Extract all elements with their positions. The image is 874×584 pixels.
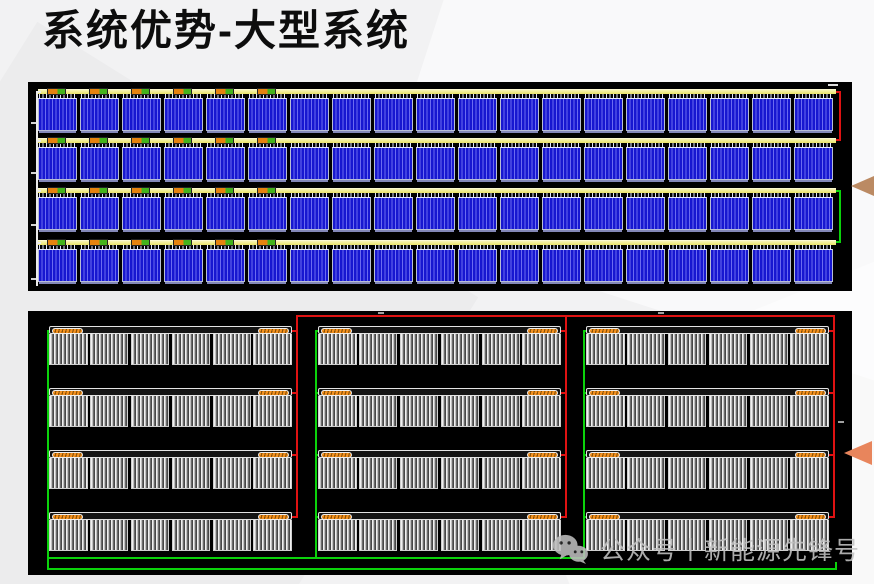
battery-rack-unit: [416, 138, 455, 184]
rack-id-label: [132, 89, 149, 94]
battery-rack-unit: [206, 188, 245, 234]
base-strip: [627, 180, 664, 182]
battery-modules: [80, 197, 119, 230]
base-strip: [753, 282, 790, 284]
rack-row: [28, 89, 852, 135]
base-strip: [207, 131, 244, 133]
base-strip: [123, 180, 160, 182]
battery-modules: [80, 249, 119, 282]
base-strip: [375, 180, 412, 182]
coil-icon: [527, 514, 558, 520]
rack-segment: [750, 334, 789, 365]
base-strip: [753, 180, 790, 182]
rack-top-rail: [586, 512, 829, 520]
rack-segment: [172, 334, 211, 365]
rack-id-label: [90, 240, 107, 245]
base-strip: [39, 282, 76, 284]
rack-segment: [482, 520, 521, 551]
base-strip: [375, 131, 412, 133]
battery-modules: [248, 147, 287, 180]
coil-icon: [589, 514, 620, 520]
battery-rack-unit: [38, 188, 77, 234]
base-strip: [291, 282, 328, 284]
rack-top-rail: [49, 450, 292, 458]
battery-modules: [374, 147, 413, 180]
rack-segment: [668, 458, 707, 489]
base-strip: [585, 131, 622, 133]
rack-top-rail: [318, 388, 561, 396]
battery-rack-unit: [584, 188, 623, 234]
base-strip: [669, 230, 706, 232]
rack-id-label: [132, 138, 149, 143]
base-strip: [123, 230, 160, 232]
rack-body: [318, 396, 561, 427]
coil-icon: [795, 390, 826, 396]
base-strip: [123, 131, 160, 133]
battery-modules: [710, 147, 749, 180]
battery-rack-unit: [500, 89, 539, 135]
rack-body: [318, 520, 561, 551]
rack-segment: [586, 458, 625, 489]
base-strip: [81, 230, 118, 232]
battery-rack-unit: [248, 188, 287, 234]
battery-modules: [584, 197, 623, 230]
rack-segment: [213, 520, 252, 551]
base-strip: [543, 230, 580, 232]
battery-modules: [416, 197, 455, 230]
battery-modules: [248, 98, 287, 131]
container-rack: [318, 326, 561, 366]
battery-rack-unit: [584, 138, 623, 184]
battery-modules: [164, 147, 203, 180]
base-strip: [459, 180, 496, 182]
rack-segment: [318, 396, 357, 427]
rack-segment: [49, 396, 88, 427]
battery-modules: [668, 98, 707, 131]
rack-id-label: [258, 89, 275, 94]
container-rack: [49, 450, 292, 490]
base-strip: [501, 230, 538, 232]
base-strip: [375, 230, 412, 232]
bus-tick: [31, 278, 36, 280]
base-strip: [207, 230, 244, 232]
battery-modules: [458, 147, 497, 180]
rack-segment: [213, 396, 252, 427]
battery-rack-unit: [290, 240, 329, 286]
battery-modules: [374, 249, 413, 282]
battery-rack-unit: [542, 138, 581, 184]
battery-rack-unit: [374, 188, 413, 234]
base-strip: [249, 230, 286, 232]
base-strip: [81, 180, 118, 182]
container-rack: [49, 512, 292, 552]
base-strip: [543, 180, 580, 182]
battery-rack-unit: [458, 240, 497, 286]
coil-icon: [527, 328, 558, 334]
battery-rack-unit: [290, 188, 329, 234]
base-strip: [81, 131, 118, 133]
base-strip: [123, 282, 160, 284]
base-strip: [543, 282, 580, 284]
battery-modules: [248, 249, 287, 282]
battery-rack-unit: [500, 188, 539, 234]
battery-modules: [164, 249, 203, 282]
battery-modules: [500, 249, 539, 282]
coil-icon: [321, 390, 352, 396]
battery-modules: [122, 197, 161, 230]
rack-segment: [253, 334, 292, 365]
coil-icon: [795, 514, 826, 520]
battery-modules: [752, 147, 791, 180]
coil-icon: [589, 452, 620, 458]
rack-row: [28, 138, 852, 184]
battery-rack-unit: [164, 138, 203, 184]
coil-icon: [52, 328, 83, 334]
rack-segment: [318, 520, 357, 551]
base-strip: [417, 230, 454, 232]
base-strip: [333, 131, 370, 133]
rack-body: [586, 334, 829, 365]
battery-rack-unit: [248, 138, 287, 184]
wechat-icon: [552, 533, 590, 565]
rack-segment: [131, 334, 170, 365]
rack-segment: [318, 458, 357, 489]
rack-id-label: [216, 240, 233, 245]
rack-top-rail: [318, 326, 561, 334]
base-strip: [795, 131, 832, 133]
watermark-text: 公众号丨新能源先锋号: [600, 531, 860, 567]
battery-modules: [626, 147, 665, 180]
battery-rack-unit: [794, 240, 833, 286]
battery-modules: [332, 197, 371, 230]
base-strip: [39, 230, 76, 232]
battery-rack-unit: [38, 138, 77, 184]
rack-segment: [522, 334, 561, 365]
base-strip: [249, 282, 286, 284]
rack-segment: [790, 458, 829, 489]
rack-body: [49, 520, 292, 551]
rack-segment: [627, 396, 666, 427]
base-strip: [711, 131, 748, 133]
rack-id-label: [216, 188, 233, 193]
battery-rack-unit: [710, 89, 749, 135]
battery-modules: [290, 197, 329, 230]
base-strip: [249, 131, 286, 133]
container-rack: [586, 388, 829, 428]
battery-modules: [668, 147, 707, 180]
battery-modules: [458, 197, 497, 230]
battery-rack-unit: [374, 240, 413, 286]
container-rack: [318, 388, 561, 428]
base-strip: [39, 180, 76, 182]
battery-rack-unit: [206, 240, 245, 286]
battery-rack-unit: [584, 240, 623, 286]
container-rack: [49, 326, 292, 366]
container-rack: [318, 450, 561, 490]
coil-icon: [795, 452, 826, 458]
base-strip: [753, 131, 790, 133]
battery-rack-unit: [668, 188, 707, 234]
rack-segment: [172, 396, 211, 427]
rack-id-label: [48, 188, 65, 193]
base-strip: [333, 230, 370, 232]
battery-rack-unit: [38, 89, 77, 135]
coil-icon: [795, 328, 826, 334]
battery-rack-unit: [122, 138, 161, 184]
base-strip: [585, 282, 622, 284]
battery-modules: [500, 147, 539, 180]
rack-id-label: [132, 188, 149, 193]
rack-body: [586, 396, 829, 427]
battery-modules: [416, 98, 455, 131]
rack-segment: [172, 458, 211, 489]
rack-segment: [318, 334, 357, 365]
base-strip: [249, 180, 286, 182]
battery-modules: [710, 249, 749, 282]
rack-segment: [90, 334, 129, 365]
base-strip: [711, 282, 748, 284]
coil-icon: [258, 328, 289, 334]
coil-icon: [321, 452, 352, 458]
battery-modules: [38, 249, 77, 282]
battery-modules: [248, 197, 287, 230]
coil-icon: [52, 452, 83, 458]
battery-modules: [584, 147, 623, 180]
rack-id-label: [258, 240, 275, 245]
base-strip: [501, 282, 538, 284]
base-strip: [333, 180, 370, 182]
battery-modules: [542, 249, 581, 282]
rack-body: [318, 334, 561, 365]
battery-rack-unit: [710, 188, 749, 234]
battery-modules: [458, 98, 497, 131]
base-strip: [543, 131, 580, 133]
base-strip: [459, 230, 496, 232]
base-strip: [459, 131, 496, 133]
bus-tick: [31, 172, 36, 174]
battery-rack-unit: [164, 89, 203, 135]
base-strip: [711, 230, 748, 232]
rack-id-label: [132, 240, 149, 245]
rack-segment: [359, 334, 398, 365]
slide: 系统优势-大型系统 公众号丨新能源先锋号: [0, 0, 874, 584]
base-strip: [459, 282, 496, 284]
rack-top-rail: [586, 450, 829, 458]
battery-modules: [794, 197, 833, 230]
battery-modules: [206, 98, 245, 131]
battery-modules: [542, 197, 581, 230]
base-strip: [81, 282, 118, 284]
battery-modules: [668, 249, 707, 282]
base-strip: [585, 230, 622, 232]
battery-rack-unit: [164, 240, 203, 286]
battery-rack-unit: [794, 138, 833, 184]
battery-modules: [794, 98, 833, 131]
rack-segment: [90, 520, 129, 551]
battery-rack-unit: [668, 240, 707, 286]
rack-segment: [131, 396, 170, 427]
rack-top-rail: [318, 512, 561, 520]
base-strip: [417, 282, 454, 284]
dc-wire-red-vertical: [833, 315, 835, 518]
rack-body: [49, 334, 292, 365]
rack-id-label: [48, 138, 65, 143]
base-strip: [333, 282, 370, 284]
base-strip: [165, 230, 202, 232]
battery-modules: [80, 147, 119, 180]
battery-modules: [374, 197, 413, 230]
rack-segment: [253, 458, 292, 489]
battery-rack-unit: [122, 188, 161, 234]
base-strip: [291, 180, 328, 182]
rack-top-rail: [49, 388, 292, 396]
rack-segment: [90, 458, 129, 489]
rack-segment: [627, 334, 666, 365]
rack-segment: [790, 334, 829, 365]
rack-top-rail: [318, 450, 561, 458]
rack-row: [28, 188, 852, 234]
base-strip: [501, 131, 538, 133]
rack-segment: [49, 520, 88, 551]
base-strip: [627, 131, 664, 133]
battery-modules: [752, 98, 791, 131]
callout-arrow-top: [851, 176, 874, 196]
base-strip: [627, 282, 664, 284]
battery-rack-unit: [80, 138, 119, 184]
battery-modules: [584, 98, 623, 131]
rack-id-label: [174, 138, 191, 143]
base-strip: [291, 131, 328, 133]
rack-segment: [359, 520, 398, 551]
battery-rack-unit: [752, 89, 791, 135]
rack-id-label: [90, 89, 107, 94]
container-rack: [586, 326, 829, 366]
rack-segment: [441, 458, 480, 489]
bus-stub: [36, 140, 41, 142]
coil-icon: [527, 390, 558, 396]
battery-rack-unit: [626, 188, 665, 234]
rack-segment: [627, 458, 666, 489]
coil-icon: [589, 328, 620, 334]
coil-icon: [321, 328, 352, 334]
rack-segment: [400, 520, 439, 551]
base-strip: [165, 131, 202, 133]
corner-annotation: [828, 84, 838, 86]
base-strip: [795, 180, 832, 182]
dc-wire-red-vertical: [296, 315, 298, 518]
base-strip: [711, 180, 748, 182]
battery-modules: [416, 147, 455, 180]
rack-segment: [400, 458, 439, 489]
base-strip: [165, 282, 202, 284]
battery-modules: [668, 197, 707, 230]
coil-icon: [589, 390, 620, 396]
rack-segment: [668, 396, 707, 427]
coil-icon: [258, 452, 289, 458]
rack-segment: [131, 520, 170, 551]
battery-rack-unit: [416, 240, 455, 286]
dc-wire-green-horizontal: [47, 568, 837, 570]
coil-icon: [258, 514, 289, 520]
battery-rack-unit: [794, 89, 833, 135]
battery-modules: [500, 197, 539, 230]
battery-modules: [542, 147, 581, 180]
battery-rack-unit: [794, 188, 833, 234]
battery-modules: [416, 249, 455, 282]
battery-modules: [206, 147, 245, 180]
dc-wire-green-vertical: [315, 330, 317, 558]
bus-stub: [36, 242, 41, 244]
rack-segment: [400, 334, 439, 365]
rack-segment: [790, 396, 829, 427]
base-strip: [501, 180, 538, 182]
battery-rack-unit: [710, 240, 749, 286]
battery-modules: [626, 98, 665, 131]
rack-segment: [750, 458, 789, 489]
battery-modules: [710, 197, 749, 230]
battery-rack-unit: [248, 240, 287, 286]
rack-segment: [482, 396, 521, 427]
dimension-tick: [378, 312, 384, 314]
rack-segment: [441, 396, 480, 427]
rack-segment: [586, 396, 625, 427]
dc-wire-red-vertical: [565, 315, 567, 518]
rack-segment: [359, 396, 398, 427]
base-strip: [627, 230, 664, 232]
battery-rack-unit: [80, 188, 119, 234]
battery-modules: [290, 147, 329, 180]
rack-segment: [49, 334, 88, 365]
battery-modules: [122, 98, 161, 131]
rack-id-label: [216, 89, 233, 94]
rack-top-rail: [49, 512, 292, 520]
rack-id-label: [90, 138, 107, 143]
rack-top-rail: [49, 326, 292, 334]
rack-id-label: [90, 188, 107, 193]
battery-rack-unit: [584, 89, 623, 135]
base-strip: [669, 180, 706, 182]
base-strip: [291, 230, 328, 232]
battery-modules: [206, 197, 245, 230]
rack-segment: [522, 458, 561, 489]
battery-modules: [290, 249, 329, 282]
dc-wire-green-vertical: [583, 330, 585, 558]
battery-modules: [332, 147, 371, 180]
dc-wire-green-horizontal: [47, 557, 585, 559]
battery-modules: [626, 197, 665, 230]
battery-rack-unit: [164, 188, 203, 234]
battery-modules: [122, 249, 161, 282]
rack-segment: [90, 396, 129, 427]
base-strip: [39, 131, 76, 133]
base-strip: [207, 180, 244, 182]
dimension-tick: [658, 312, 664, 314]
rack-segment: [213, 458, 252, 489]
battery-modules: [332, 249, 371, 282]
rack-segment: [709, 396, 748, 427]
rack-id-label: [174, 240, 191, 245]
container-rack: [49, 388, 292, 428]
bus-stub: [36, 91, 41, 93]
battery-rack-unit: [122, 240, 161, 286]
battery-modules: [164, 197, 203, 230]
battery-modules: [80, 98, 119, 131]
battery-modules: [752, 197, 791, 230]
rack-id-label: [258, 188, 275, 193]
battery-rack-unit: [542, 89, 581, 135]
watermark: 公众号丨新能源先锋号: [552, 531, 860, 567]
battery-rack-unit: [374, 89, 413, 135]
